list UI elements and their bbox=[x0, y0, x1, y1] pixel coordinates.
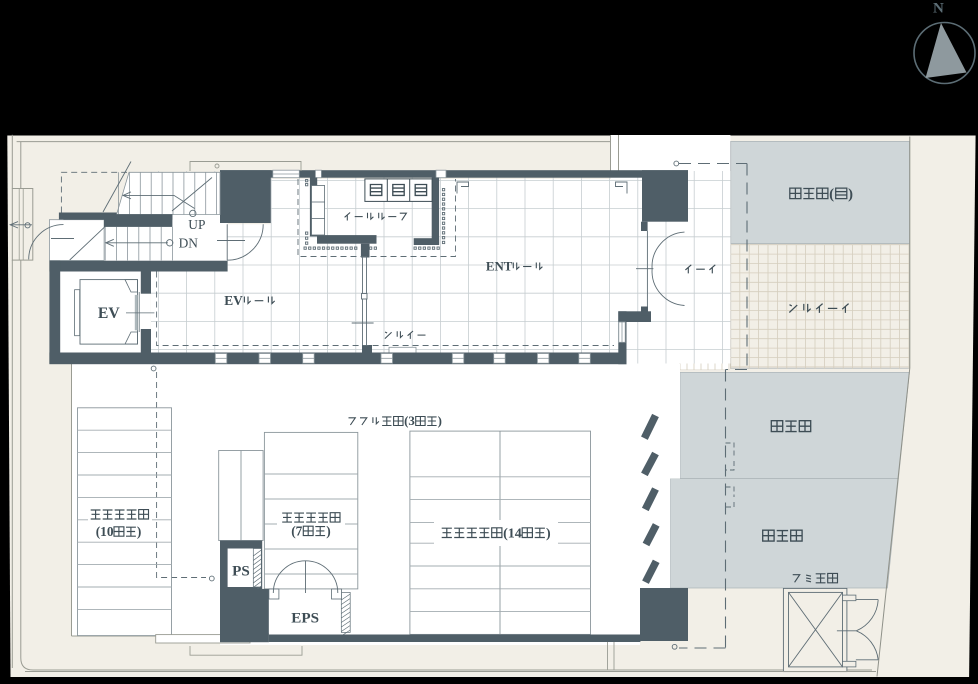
svg-text:DN: DN bbox=[179, 235, 199, 250]
svg-text:EPS: EPS bbox=[291, 610, 319, 626]
svg-text:): ) bbox=[326, 523, 330, 538]
svg-text:): ) bbox=[438, 414, 442, 428]
svg-text:EV: EV bbox=[224, 293, 243, 308]
svg-text:): ) bbox=[546, 526, 551, 541]
svg-text:(: ( bbox=[829, 186, 834, 202]
svg-text:): ) bbox=[848, 186, 853, 202]
svg-text:(7: (7 bbox=[291, 523, 302, 538]
svg-text:(14: (14 bbox=[503, 526, 522, 541]
svg-text:ENT: ENT bbox=[486, 260, 513, 274]
svg-text:(3: (3 bbox=[404, 414, 415, 428]
svg-text:UP: UP bbox=[188, 217, 205, 232]
svg-text:EV: EV bbox=[98, 305, 120, 322]
svg-text:(10: (10 bbox=[96, 524, 114, 539]
svg-text:N: N bbox=[933, 1, 944, 17]
svg-text:PS: PS bbox=[232, 563, 250, 579]
svg-text:): ) bbox=[137, 524, 141, 539]
